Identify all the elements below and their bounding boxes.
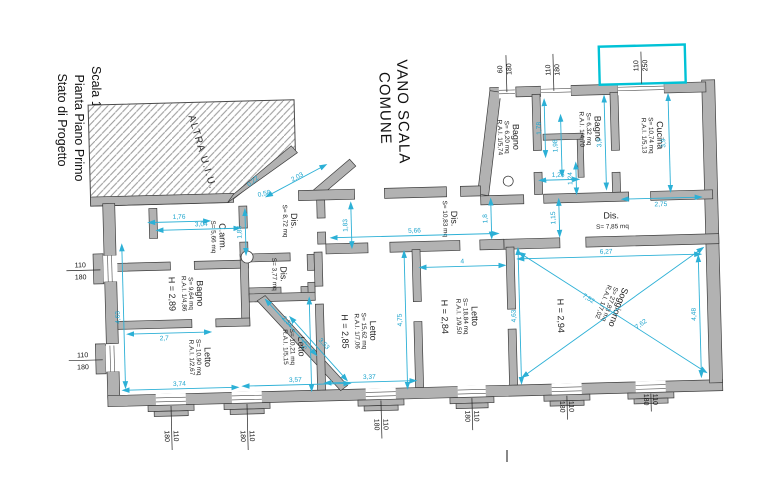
dim-label: 3,57 (289, 377, 302, 384)
svg-text:S= 5,66 mq: S= 5,66 mq (209, 220, 217, 253)
dim-label: 2,75 (654, 201, 667, 208)
svg-text:S= 3,77 mq: S= 3,77 mq (270, 258, 278, 291)
dim-label: 4,63 (114, 311, 121, 324)
window (93, 253, 118, 284)
dim-label: 3,04 (195, 221, 208, 228)
svg-text:180: 180 (75, 274, 87, 281)
svg-text:110: 110 (567, 401, 574, 412)
svg-text:180: 180 (463, 410, 470, 422)
room-label-soggiorno: Soggiorno S= 27,83 mq R.A.I. 1/7,02 (592, 281, 630, 328)
svg-text:Dis.: Dis. (603, 210, 619, 220)
dim-label: 3,9 (596, 138, 603, 148)
wall (314, 252, 323, 286)
svg-text:R.A.I. 1/7,06: R.A.I. 1/7,06 (353, 313, 361, 349)
svg-text:R.A.I. 1/5,13: R.A.I. 1/5,13 (640, 118, 648, 154)
wall (460, 186, 480, 197)
svg-text:180: 180 (372, 419, 379, 431)
room-label-bagno2: Bagno S= 6,20 mq R.A.I. 1/5,74 (496, 119, 522, 156)
svg-text:180: 180 (239, 430, 246, 442)
room-label-dis2: Dis. S= 3,77 mq (270, 257, 289, 291)
window-label: 110250 (633, 51, 650, 83)
wall (481, 195, 524, 205)
svg-text:Bagno: Bagno (593, 116, 604, 142)
svg-text:Letto: Letto (368, 321, 379, 341)
wall (384, 187, 446, 199)
dim-label: 3,74 (173, 381, 186, 388)
wall (544, 192, 629, 203)
wall (480, 239, 504, 250)
svg-text:110: 110 (77, 352, 88, 359)
dim-label: 1,24 (567, 172, 574, 185)
dim-label: 4,63 (511, 309, 518, 322)
svg-text:R.A.I. 1/4,70: R.A.I. 1/4,70 (577, 111, 585, 147)
room-label-dis3: Dis. S= 10,83 mq (441, 200, 460, 237)
soggiorno-height: H = 2,94 (555, 299, 566, 334)
svg-text:110: 110 (381, 419, 388, 430)
wall (326, 243, 368, 254)
stairwell-line2: COMUNE (375, 72, 394, 145)
dim-label: 3,2 (301, 340, 308, 350)
wall (610, 92, 620, 150)
room-label-cucina: Cucina S= 10,74 mq R.A.I. 1/5,13 (640, 117, 666, 155)
svg-text:Letto: Letto (202, 347, 213, 367)
dim-label: 1,83 (236, 225, 243, 238)
svg-text:Letto: Letto (469, 306, 480, 326)
svg-text:110: 110 (651, 394, 658, 405)
dim-label: 1,98 (552, 139, 559, 152)
window (541, 84, 571, 97)
svg-text:110: 110 (75, 262, 86, 269)
wall (239, 206, 248, 228)
wall (612, 172, 621, 192)
room-label-dis4: Dis. S= 7,85 mq (596, 210, 630, 231)
column (241, 251, 253, 263)
dim-label: 6,27 (600, 248, 613, 255)
dim-label: 3,9 (660, 138, 667, 148)
wall (240, 260, 250, 326)
svg-text:H = 2,84: H = 2,84 (439, 300, 450, 335)
room-label-letto4: Letto S= 18,84 mq R.A.I. 1/9,50 H = 2,84 (439, 298, 480, 336)
dim-label: 1,78 (536, 121, 543, 134)
svg-text:180: 180 (554, 64, 561, 76)
dim-label: 7,62 (634, 318, 649, 331)
room-label-letto3: Letto S= 15,62 mq R.A.I. 1/7,06 H = 2,85 (340, 312, 379, 350)
wall (317, 200, 325, 218)
dim-label: 0,58 (257, 189, 271, 199)
drawing-sheet: Stato di Progetto Pianta Piano Primo Sca… (0, 0, 764, 492)
svg-text:Dis.: Dis. (449, 211, 459, 227)
plan: ALTRA U.I.U. (61, 44, 724, 455)
svg-text:180: 180 (642, 394, 649, 406)
wall (216, 318, 250, 327)
svg-text:H = 2,89: H = 2,89 (167, 277, 178, 312)
svg-text:110: 110 (172, 430, 179, 441)
dim-label: 1,15 (550, 211, 557, 224)
wall (390, 240, 460, 252)
room-label-letto1: Letto S= 10,90 mq R.A.I. 1/2,67 (187, 339, 213, 377)
svg-text:H = 2,85: H = 2,85 (340, 314, 351, 349)
floor-plan-svg: Stato di Progetto Pianta Piano Primo Sca… (0, 0, 764, 492)
title-line-1: Stato di Progetto (55, 73, 69, 166)
svg-text:R.A.I. 1/4,86: R.A.I. 1/4,86 (180, 276, 188, 312)
svg-text:110: 110 (633, 60, 640, 71)
svg-text:110: 110 (472, 410, 479, 421)
svg-text:R.A.I. 1/9,50: R.A.I. 1/9,50 (454, 299, 462, 335)
wall (118, 319, 192, 329)
room-label-dis1: Dis. S= 8,72 mq (281, 204, 300, 238)
dim-label: 1,8 (482, 214, 489, 224)
svg-text:S= 10,83 mq: S= 10,83 mq (441, 201, 449, 238)
svg-text:250: 250 (642, 59, 649, 71)
svg-text:Bagno: Bagno (195, 280, 206, 306)
svg-text:110: 110 (248, 430, 255, 441)
window (95, 343, 120, 374)
wall (318, 232, 326, 244)
dim-label: 1,76 (173, 214, 186, 221)
svg-text:R.A.I. 1/2,67: R.A.I. 1/2,67 (187, 340, 195, 376)
wall (534, 172, 543, 194)
svg-text:R.A.I. 1/5,15: R.A.I. 1/5,15 (281, 329, 289, 365)
stairwell-line1: VANO SCALA (393, 59, 413, 164)
svg-text:S= 7,85 mq: S= 7,85 mq (596, 223, 629, 231)
wall (103, 203, 116, 255)
dim-label: 5,66 (408, 227, 421, 234)
dim-label: 7,52 (581, 292, 596, 305)
wall (298, 189, 354, 200)
dim-label: 2,03 (290, 171, 305, 183)
svg-text:180: 180 (558, 401, 565, 413)
dim-label: 4,75 (397, 313, 404, 326)
wall (414, 321, 424, 387)
svg-text:180: 180 (77, 364, 89, 371)
wall (149, 208, 158, 238)
wall (702, 80, 723, 383)
wall (116, 262, 170, 271)
wall (307, 254, 314, 270)
svg-text:C.arm.: C.arm. (217, 223, 228, 250)
svg-text:180: 180 (506, 63, 513, 75)
wall (508, 329, 517, 385)
column (503, 176, 513, 186)
dim-label: 4,48 (691, 307, 698, 320)
svg-text:Dis.: Dis. (289, 213, 299, 229)
room-label-cam: C.arm. S= 5,66 mq (209, 220, 228, 254)
dim-label: 3,37 (363, 374, 376, 381)
svg-text:S= 8,72 mq: S= 8,72 mq (281, 204, 289, 237)
svg-text:Dis.: Dis. (278, 266, 288, 282)
svg-text:180: 180 (163, 430, 170, 442)
wall (586, 234, 719, 247)
room-label-bagno1: Bagno S= 9,64 mq R.A.I. 1/4,86 H = 2,89 (167, 275, 206, 312)
wall (506, 247, 516, 309)
dim-label: 4 (460, 258, 464, 265)
dim-label: 1,26 (552, 172, 565, 179)
svg-text:R.A.I. 1/5,74: R.A.I. 1/5,74 (496, 120, 504, 156)
wall (651, 190, 713, 201)
svg-text:110: 110 (545, 64, 552, 75)
dim-label: 2,7 (160, 335, 170, 342)
title-line-2: Pianta Piano Primo (72, 74, 86, 181)
wall (412, 249, 421, 301)
stairwell-label: VANO SCALA COMUNE (375, 59, 413, 165)
dim-label: 1,83 (342, 219, 349, 232)
svg-text:Bagno: Bagno (511, 124, 522, 150)
svg-text:60: 60 (497, 65, 504, 73)
wall (308, 282, 315, 293)
